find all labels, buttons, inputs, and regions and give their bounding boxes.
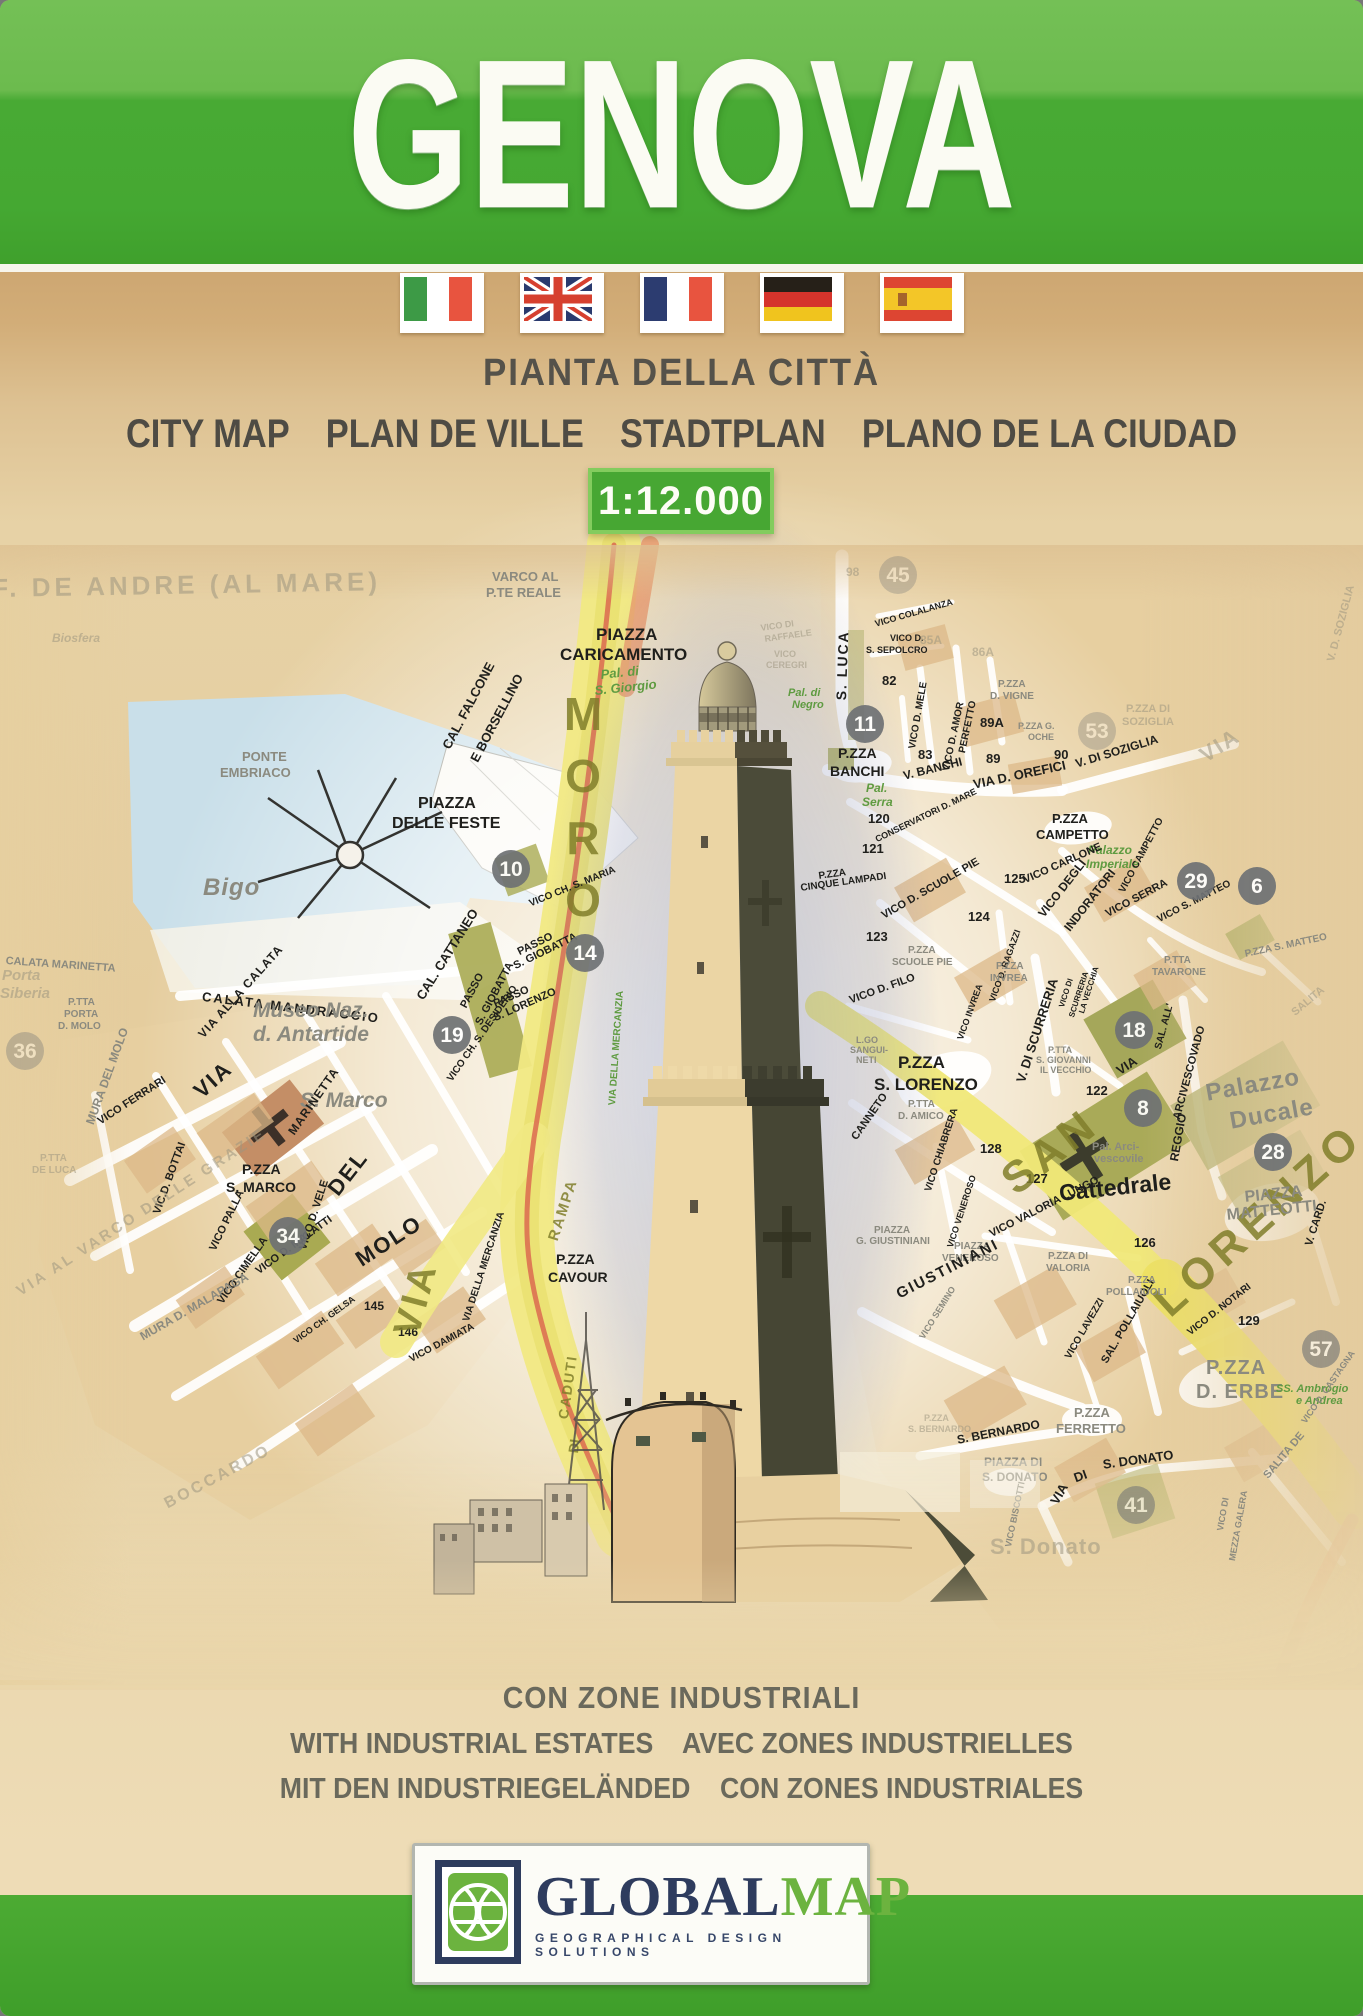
map-label: VICO LAVEZZI (1064, 1297, 1107, 1361)
map-label: CAVOUR (548, 1270, 608, 1284)
map-label: Bigo (203, 876, 260, 900)
map-label: Negro (792, 700, 824, 711)
map-label: L.GO (856, 1036, 878, 1045)
map-label: PORTA (64, 1010, 98, 1020)
map-label: P.ZZA (556, 1252, 595, 1266)
map-label: P.ZZA (898, 1054, 945, 1071)
map-label: VICO VALORIA LUNGO (988, 1175, 1101, 1240)
map-label: Museo Naz. (253, 1000, 369, 1021)
map-badge: 57 (1302, 1330, 1340, 1368)
map-label: D. ERBE (1196, 1382, 1284, 1402)
map-badge: 36 (6, 1032, 44, 1070)
map-label: SAL. POLLAIUOLI (1100, 1278, 1157, 1366)
map-label: VICO DAMIATA (408, 1322, 476, 1365)
map-label: P.ZZA (908, 946, 936, 956)
map-label: DELLE FESTE (392, 816, 500, 832)
map-label: D. VIGNE (990, 692, 1034, 702)
logo-tagline: GEOGRAPHICAL DESIGN SOLUTIONS (535, 1931, 911, 1959)
map-label: VICO D. (890, 634, 924, 643)
map-label: VICO SEMINO (918, 1285, 957, 1341)
map-label: OCHE (1028, 733, 1054, 742)
map-label: SOZIGLIA (1122, 717, 1174, 728)
map-label: VICO INVREA (956, 983, 984, 1041)
map-label: VICO (774, 650, 796, 659)
map-label: S. BERNARDO (908, 1425, 971, 1434)
map-label: S. DONATO (982, 1471, 1048, 1483)
map-label: G. GIUSTINIANI (856, 1237, 930, 1247)
map-label: VIA DELLA MERCANZIA (608, 990, 626, 1105)
map-badge: 10 (492, 850, 530, 888)
map-label: LORENZO (1146, 1115, 1363, 1324)
map-label: CAL. CATTANEO (414, 907, 480, 1002)
map-label: VENEROSO (942, 1254, 999, 1264)
map-label: CONSERVATORI D. MARE (874, 787, 978, 844)
map-label: VIA D. OREFICI (972, 758, 1067, 790)
map-label: V. D. SOZIGLIA (1326, 584, 1357, 663)
map-label: VICO CIMELLA (216, 1235, 270, 1306)
map-label: CARICAMENTO (560, 646, 687, 663)
map-badge: 18 (1115, 1011, 1153, 1049)
map-label: S. GIOBATTA (512, 932, 579, 972)
map-label: VICO CH. GELSA (292, 1295, 357, 1345)
map-label: Imperiale (1086, 858, 1139, 870)
map-label: DEL (324, 1147, 372, 1200)
map-label: DI (1072, 1468, 1089, 1485)
map-label: VICO CAMPETTO (1118, 817, 1166, 895)
map-cover-page: F. DE ANDRE (AL MARE)BiosferaVARCO ALP.T… (0, 0, 1363, 2016)
map-badge: 14 (566, 934, 604, 972)
map-label: S. LORENZO (492, 987, 558, 1024)
map-label: INVREA (990, 974, 1028, 984)
map-label: VICO CHIABRERA (924, 1107, 960, 1193)
map-label: EMBRIACO (220, 766, 291, 779)
map-label: 122 (1086, 1084, 1108, 1097)
map-label: SALITA DE (1262, 1430, 1307, 1481)
map-label: PIAZZA DI (984, 1456, 1042, 1468)
map-label: ARCIVESCOVADO (1172, 1025, 1208, 1121)
map-label: D. AMICO (898, 1112, 944, 1122)
map-label: F. DE ANDRE (AL MARE) (0, 568, 381, 601)
map-label: MEZZA GALERA (1228, 1490, 1249, 1562)
map-label: Ducale (1228, 1095, 1316, 1133)
map-label: CAMPETTO (1036, 828, 1109, 841)
map-label: VICO D. VELE (298, 1179, 331, 1252)
map-label: RAMPA (546, 1177, 580, 1242)
map-label: V. CARD. (1304, 1199, 1329, 1247)
flag-france-icon (640, 273, 724, 333)
subtitle-languages: CITY MAPPLAN DE VILLESTADTPLANPLANO DE L… (95, 412, 1267, 457)
map-badge: 41 (1117, 1486, 1155, 1524)
map-label: P.ZZA (838, 746, 877, 760)
map-label: VICO D. AMOR (942, 701, 966, 772)
map-label: LA VECCHIA (1078, 966, 1101, 1015)
map-label: SAN (994, 1102, 1106, 1203)
map-label: E BORSELLINO (468, 672, 525, 764)
industrial-zones-note: CON ZONE INDUSTRIALI WITH INDUSTRIAL EST… (55, 1680, 1309, 1806)
map-label: VICO D. MALATTI (254, 1214, 334, 1277)
map-label: S. DONATO (1102, 1448, 1174, 1471)
map-label: VICO DI (760, 619, 794, 633)
map-label: 146 (398, 1326, 418, 1338)
page-title: GENOVA (177, 28, 1186, 240)
map-label: P.ZZA (996, 962, 1024, 972)
map-label: 89 (986, 752, 1000, 765)
map-label: CANNETO (850, 1092, 890, 1143)
map-label: VICO SERRA (1104, 878, 1170, 920)
map-label: BOCCARDO (162, 1442, 274, 1512)
map-label: P.ZZA (242, 1162, 281, 1176)
map-label: POLLAIUOLI (1106, 1288, 1167, 1298)
map-label: 123 (866, 930, 888, 943)
map-label: GIUSTINIANI (894, 1237, 1001, 1302)
map-label: V. BANCHI (902, 755, 963, 781)
map-label: 124 (968, 910, 990, 923)
map-label: VIC.D. BOTTAI (152, 1141, 188, 1216)
map-label: DI (566, 1438, 582, 1454)
logo-name-global: GLOBAL (535, 1866, 781, 1928)
map-label: MORO (560, 688, 606, 936)
map-label: 89A (980, 716, 1004, 729)
map-label: VICO D. FILO (848, 972, 917, 1006)
map-badge: 29 (1177, 862, 1215, 900)
map-label: V. DI SOZIGLIA (1074, 733, 1159, 769)
map-label: 120 (868, 812, 890, 825)
map-label: 82 (882, 674, 896, 687)
logo-text: GLOBALMAP GEOGRAPHICAL DESIGN SOLUTIONS (535, 1869, 911, 1959)
map-badge: 28 (1254, 1133, 1292, 1171)
map-label: P.ZZA (998, 680, 1026, 690)
map-label: d. Antartide (253, 1024, 369, 1045)
map-label: P.TE REALE (486, 586, 561, 599)
map-label: RAFFAELE (764, 628, 812, 644)
map-label: 85A (920, 634, 942, 646)
map-label: VICO D. RAGAZZI (988, 929, 1022, 1003)
map-label: SALITA (1290, 985, 1327, 1018)
map-label: VICO D. CASTAGNA (1300, 1349, 1357, 1425)
map-label: VIA (1048, 1481, 1070, 1506)
flags-row (0, 273, 1363, 333)
map-label: D. MOLO (58, 1022, 101, 1032)
map-label: CALATA MANDRACCIO (201, 990, 380, 1025)
map-label: VICO DI (1216, 1497, 1231, 1532)
map-label: P.ZZA DI (1048, 1252, 1088, 1262)
globe-grid-icon (435, 1860, 521, 1969)
map-label: PASSO (516, 931, 555, 957)
map-badge: 11 (846, 705, 884, 743)
map-label: Palazzo (1204, 1065, 1302, 1105)
map-label: REGGIO (1168, 1113, 1188, 1162)
map-label: PIAZZA (1244, 1184, 1303, 1206)
map-label: VICO VENEROSO (946, 1174, 978, 1249)
map-label: INDORATORI (1062, 867, 1118, 933)
map-label: DE LUCA (32, 1166, 76, 1176)
map-label: Palazzo (1088, 844, 1132, 856)
map-label: CAL. FALCONE (440, 660, 497, 751)
map-label: e Andrea (1296, 1396, 1343, 1407)
map-label: VICO FERRARI (96, 1075, 168, 1127)
map-badge: 53 (1078, 712, 1116, 750)
header-band: GENOVA (0, 0, 1363, 265)
map-label: P.ZZA (924, 1414, 949, 1423)
map-label: PONTE (242, 750, 287, 763)
map-label: PIAZZA (596, 626, 657, 643)
map-label: MARINETTA (286, 1065, 341, 1136)
map-label: VICO DEGLI (1036, 857, 1088, 919)
logo-name-map: MAP (781, 1866, 912, 1928)
map-label: SANGUI- (850, 1046, 888, 1055)
map-label: VICO DI (1058, 978, 1075, 1009)
map-label: S. Giorgio (594, 678, 657, 697)
globalmap-logo: GLOBALMAP GEOGRAPHICAL DESIGN SOLUTIONS (412, 1843, 870, 1985)
map-label: PIAZZA (954, 1242, 990, 1252)
map-badge: 45 (879, 556, 917, 594)
map-label: P.ZZA (1052, 812, 1088, 825)
map-label: 128 (980, 1142, 1002, 1155)
map-label: MURA DEL MOLO (84, 1026, 130, 1126)
map-label: Siberia (0, 986, 50, 1001)
map-label: S. GIOVANNI (1036, 1056, 1091, 1065)
map-label: Pal. Arci- (1092, 1142, 1139, 1153)
map-label: PIAZZA (418, 796, 476, 812)
map-label: Biosfera (52, 632, 100, 644)
map-label: 145 (364, 1300, 384, 1312)
map-label: PASSO (492, 985, 531, 1010)
map-label: VIA ALLA CALATA (196, 943, 285, 1040)
map-label: S. LUCA (834, 630, 850, 700)
map-label: VIA (190, 1057, 236, 1102)
map-label: SCURRERIA (1068, 971, 1090, 1019)
map-label: VIA AL VARCO DELLE GRAZIE (14, 1126, 269, 1299)
map-label: FERRETTO (1056, 1422, 1126, 1435)
map-label: S. Donato (990, 1536, 1102, 1558)
footer-line-en-fr: WITH INDUSTRIAL ESTATES AVEC ZONES INDUS… (55, 1728, 1309, 1761)
subtitle-lang-de: STADTPLAN (620, 412, 826, 456)
map-label: 121 (862, 842, 884, 855)
map-label: P.ZZA (818, 868, 847, 882)
map-label: BANCHI (830, 764, 884, 778)
map-label: VALORIA (1046, 1264, 1090, 1274)
map-label: VICO D. NOTARI (1186, 1282, 1253, 1338)
scale-badge: 1:12.000 (588, 468, 774, 534)
map-label: PERFETTO (958, 700, 979, 754)
map-label: CADUTI (556, 1354, 579, 1420)
map-badge: 8 (1124, 1089, 1162, 1127)
map-label: SCUOLE PIE (892, 958, 953, 968)
map-label: IL VECCHIO (1040, 1066, 1091, 1075)
map-label: 90 (1054, 748, 1068, 761)
map-label: SAL. ALL' (1154, 1003, 1176, 1051)
map-label: P.ZZA G. (1018, 722, 1055, 731)
map-label: S. BERNARDO (956, 1418, 1041, 1446)
map-label: P.ZZA (1074, 1406, 1110, 1419)
map-label: VICO COLALANZA (874, 598, 954, 629)
map-label: MURA D. MALAPAGA (138, 1271, 250, 1343)
subtitle-lang-en: CITY MAP (126, 412, 290, 456)
map-label: CINQUE LAMPADI (800, 872, 887, 894)
map-label: 83 (918, 748, 932, 761)
flag-united-kingdom-icon (520, 273, 604, 333)
map-label: P.TTA (1164, 956, 1191, 966)
map-label: MATTEOTTI (1226, 1199, 1318, 1224)
map-label: 129 (1238, 1314, 1260, 1327)
map-label: S. GIOBATTA (474, 961, 516, 1027)
bigo-structure (258, 770, 442, 918)
map-badge: 34 (269, 1217, 307, 1255)
map-label: V. DI SCURRERIA (1014, 977, 1060, 1084)
map-label: S. LORENZO (874, 1076, 978, 1093)
map-label: SS. Ambrogio (1276, 1384, 1348, 1395)
header-divider (0, 264, 1363, 272)
map-label: MOLO (352, 1212, 426, 1271)
subtitle-lang-es: PLANO DE LA CIUDAD (862, 412, 1237, 456)
map-label: 125 (1004, 872, 1026, 885)
map-label: TAVARONE (1152, 968, 1206, 978)
map-label: 126 (1134, 1236, 1156, 1249)
map-label: P.TTA (908, 1100, 935, 1110)
map-label: P.ZZA DI (1126, 704, 1170, 715)
map-label: VICO BISCOTTI (1004, 1481, 1027, 1548)
map-label: 86A (972, 646, 994, 658)
map-label: VICO PALLA (208, 1189, 247, 1253)
map-label: VIA (1114, 1054, 1139, 1077)
map-label: P.TTA (68, 998, 95, 1008)
map-label: S. MARCO (226, 1180, 296, 1194)
map-label: PIAZZA (874, 1226, 910, 1236)
map-label: P.TTA (1048, 1046, 1072, 1055)
map-label: CALATA MARINETTA (5, 956, 116, 975)
map-label: VIA (388, 1257, 444, 1340)
map-label: VICO CH. S. MARIA (528, 865, 617, 909)
map-label: S. Marco (300, 1090, 388, 1111)
map-label: VIA (1196, 725, 1244, 767)
map-label: VICO D. MELE (908, 681, 930, 750)
map-label: VIA DELLA MERCANZIA (462, 1211, 507, 1323)
map-label: Pal. di (600, 664, 639, 681)
map-label: VICO S. MATTEO (1156, 879, 1233, 925)
map-label: Porta (2, 968, 40, 983)
map-label: P.TTA (40, 1154, 67, 1164)
map-label: 98 (846, 566, 859, 578)
map-label: P.ZZA (1206, 1358, 1266, 1378)
map-label: VICO D. SCUOLE PIE (880, 857, 981, 922)
subtitle-italian: PIANTA DELLA CITTÀ (55, 352, 1309, 395)
map-label: CEREGRI (766, 661, 807, 670)
map-label: Cattedrale (1058, 1170, 1172, 1205)
footer-line-italian: CON ZONE INDUSTRIALI (55, 1680, 1309, 1716)
map-label: Pal. di (788, 688, 820, 699)
map-label: vescovile (1094, 1154, 1144, 1165)
subtitle-lang-fr: PLAN DE VILLE (326, 412, 584, 456)
flag-germany-icon (760, 273, 844, 333)
map-label: 127 (1026, 1172, 1048, 1185)
flag-spain-icon (880, 273, 964, 333)
footer-line-de-es: MIT DEN INDUSTRIEGELÄNDED CON ZONES INDU… (55, 1773, 1309, 1806)
flag-italy-icon (400, 273, 484, 333)
map-label: VARCO AL (492, 570, 558, 583)
map-label: VICO CH. S. DESIDERIO (446, 984, 520, 1084)
map-label: VICO CARLONE (1022, 842, 1104, 886)
map-label: NETI (856, 1056, 877, 1065)
map-badge: 19 (433, 1016, 471, 1054)
map-badge: 6 (1238, 867, 1276, 905)
map-label: Serra (862, 796, 893, 808)
map-label: P.ZZA S. MATTEO (1244, 933, 1328, 960)
map-label: P.ZZA (1128, 1276, 1156, 1286)
map-label: Pal. (866, 782, 887, 794)
map-label: S. SEPOLCRO (866, 646, 928, 655)
map-label: PASSO (459, 972, 486, 1010)
